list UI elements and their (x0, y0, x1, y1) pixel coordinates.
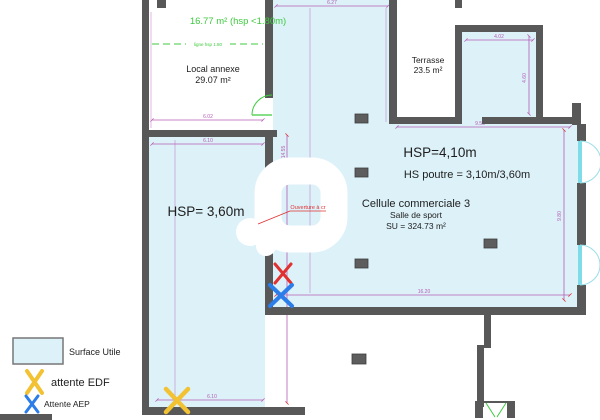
wall-segment (577, 285, 586, 315)
wall-segment (455, 25, 462, 124)
wall-segment (142, 0, 149, 415)
wall-segment (507, 402, 515, 418)
wall-segment (475, 401, 515, 403)
dim-label: 4.60 (522, 73, 528, 83)
wall-segment (265, 307, 578, 315)
main-room-beam: HS poutre = 3,10m/3,60m (404, 169, 530, 181)
legend-aep-label: Attente AEP (44, 399, 90, 409)
dim-label: 6.10 (207, 394, 217, 400)
dim-label: 16.20 (418, 289, 431, 295)
attic-note: 16.77 m² (hsp <1.80m) (190, 16, 286, 27)
terrasse-area: 23.5 m² (414, 65, 443, 75)
column (355, 168, 368, 177)
wall-segment (484, 315, 491, 348)
dim-label: 6.27 (327, 0, 337, 6)
dim-label: 9.80 (557, 211, 563, 221)
wall-segment (455, 0, 462, 8)
wall-segment (572, 103, 581, 125)
dim-label: 14.55 (281, 146, 287, 159)
terrasse-label: Terrasse (412, 55, 445, 65)
legend-edf-label: attente EDF (51, 377, 110, 389)
wall-segment (577, 183, 586, 245)
left-room-hsp: HSP= 3,60m (168, 204, 245, 219)
left-room-surface (149, 137, 265, 407)
local-annexe-label: Local annexe (186, 64, 240, 74)
column (355, 259, 368, 268)
wall-segment (157, 0, 166, 8)
wall-segment (265, 0, 273, 98)
local-annexe-area: 29.07 m² (195, 75, 231, 85)
hsp-limit-label: ligne hsp 1.80 (194, 42, 223, 47)
main-room-title: Cellule commerciale 3 (362, 198, 470, 210)
wall-segment (389, 0, 397, 124)
floor-plan-drawing: 6.02 6.10 6.10 14.55 6.27 9.80 16.20 4.0… (0, 0, 600, 420)
column (352, 354, 366, 364)
wall-segment (475, 402, 483, 418)
dim-label: 6.10 (203, 138, 213, 144)
dim-label: 6.02 (203, 114, 213, 120)
window-glass (578, 245, 582, 285)
wall-segment (577, 124, 586, 141)
wall-segment (536, 25, 543, 124)
floor-plan-page: 6.02 6.10 6.10 14.55 6.27 9.80 16.20 4.0… (0, 0, 600, 420)
main-room-surface: SU = 324.73 m² (386, 221, 446, 231)
column (355, 114, 368, 123)
wall-segment (482, 117, 575, 124)
main-room-surface-left (273, 0, 390, 307)
watermark-lobe (256, 236, 276, 256)
legend-surface-swatch (13, 338, 63, 364)
dim-label: 4.02 (494, 34, 504, 40)
wall-segment (142, 130, 277, 137)
wall-segment (0, 414, 52, 420)
window-glass (578, 141, 582, 183)
column (484, 239, 497, 248)
wall-segment (477, 345, 484, 407)
opening-note: Ouverture à cr (290, 205, 325, 211)
legend-surface-label: Surface Utile (69, 347, 121, 357)
main-room-subtitle: Salle de sport (390, 210, 443, 220)
main-room-hsp: HSP=4,10m (403, 145, 476, 160)
wall-segment (455, 25, 543, 32)
wall-segment (389, 117, 462, 124)
